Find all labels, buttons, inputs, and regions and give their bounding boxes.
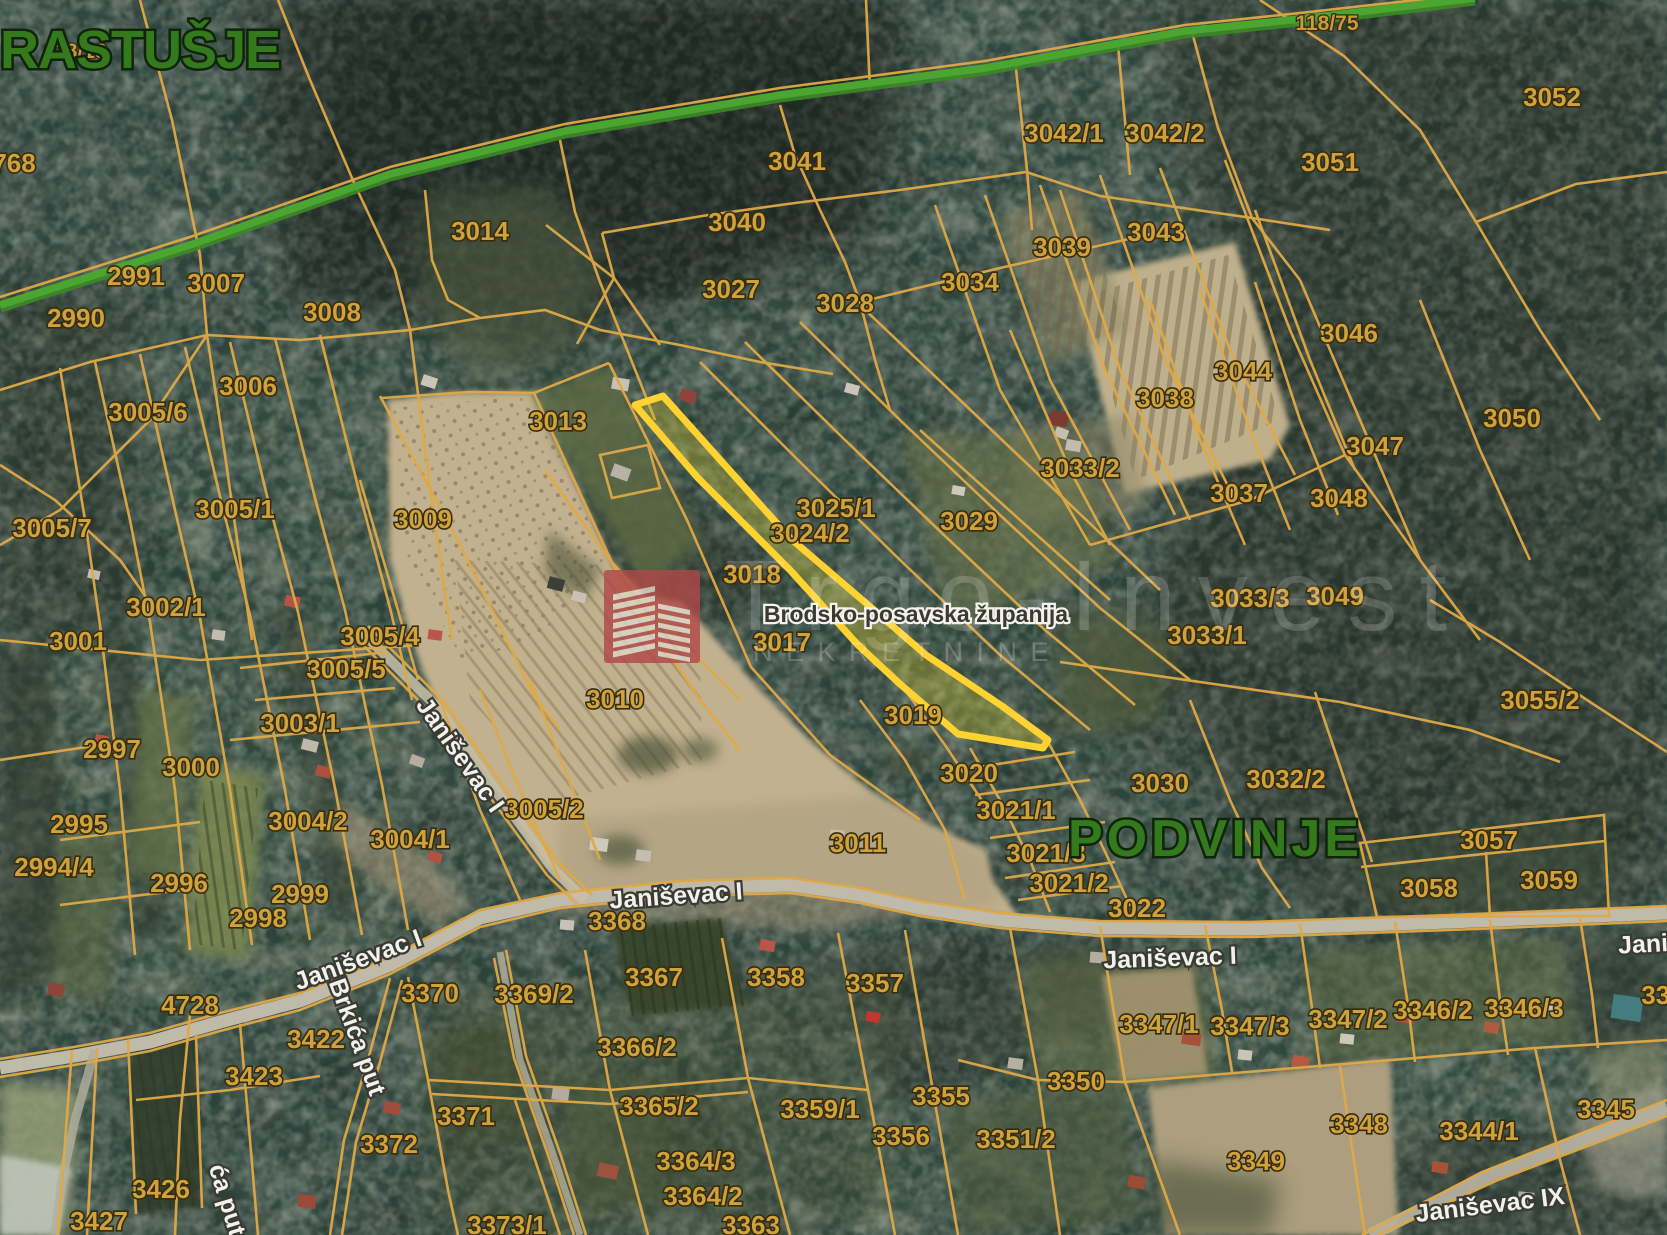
- svg-text:2991: 2991: [107, 261, 165, 291]
- svg-text:3365/2: 3365/2: [619, 1091, 699, 1121]
- svg-text:3346/3: 3346/3: [1484, 993, 1564, 1023]
- svg-text:3005/5: 3005/5: [306, 654, 386, 684]
- svg-text:2995: 2995: [50, 809, 108, 839]
- svg-text:3021/1: 3021/1: [976, 795, 1056, 825]
- svg-text:3345: 3345: [1577, 1094, 1635, 1124]
- svg-text:3004/1: 3004/1: [370, 824, 450, 854]
- svg-text:3347/2: 3347/2: [1308, 1004, 1388, 1034]
- svg-text:3369/2: 3369/2: [494, 979, 574, 1009]
- svg-text:2997: 2997: [83, 734, 141, 764]
- svg-text:3034: 3034: [941, 267, 999, 297]
- svg-text:3427: 3427: [70, 1206, 128, 1235]
- svg-text:3373/1: 3373/1: [467, 1210, 547, 1235]
- svg-text:3355: 3355: [912, 1081, 970, 1111]
- svg-text:3019: 3019: [884, 700, 942, 730]
- svg-text:3011: 3011: [830, 828, 886, 858]
- svg-text:3044: 3044: [1214, 356, 1272, 386]
- svg-text:3423: 3423: [225, 1061, 283, 1091]
- svg-text:3009: 3009: [394, 504, 452, 534]
- svg-text:3057: 3057: [1460, 825, 1518, 855]
- svg-text:3008: 3008: [303, 297, 361, 327]
- svg-text:3041: 3041: [768, 146, 826, 176]
- svg-text:3371: 3371: [437, 1101, 495, 1131]
- svg-text:3042/1: 3042/1: [1024, 118, 1104, 148]
- svg-text:3055/2: 3055/2: [1500, 685, 1580, 715]
- svg-text:3052: 3052: [1523, 82, 1581, 112]
- svg-text:3046: 3046: [1320, 318, 1378, 348]
- svg-text:Brodsko-posavska županija: Brodsko-posavska županija: [764, 601, 1068, 627]
- svg-text:Trgo-Invest: Trgo-Invest: [725, 540, 1469, 652]
- svg-text:3027: 3027: [702, 274, 760, 304]
- svg-text:3043: 3043: [1127, 217, 1185, 247]
- svg-text:3059: 3059: [1520, 865, 1578, 895]
- svg-text:3004/2: 3004/2: [268, 806, 348, 836]
- svg-text:2994/4: 2994/4: [14, 852, 94, 882]
- svg-text:3422: 3422: [287, 1024, 345, 1054]
- svg-text:3367: 3367: [625, 962, 683, 992]
- svg-text:3037: 3037: [1210, 478, 1268, 508]
- svg-text:3000: 3000: [162, 752, 220, 782]
- svg-text:3033/2: 3033/2: [1040, 453, 1120, 483]
- svg-text:3003/1: 3003/1: [260, 708, 340, 738]
- svg-text:2990: 2990: [47, 303, 105, 333]
- svg-text:118/75: 118/75: [1295, 12, 1358, 35]
- svg-text:3048: 3048: [1310, 483, 1368, 513]
- svg-text:3359/1: 3359/1: [780, 1094, 860, 1124]
- svg-text:3030: 3030: [1131, 768, 1189, 798]
- svg-text:3005/6: 3005/6: [108, 397, 188, 427]
- svg-text:3426: 3426: [132, 1174, 190, 1204]
- svg-text:3348: 3348: [1330, 1109, 1388, 1139]
- svg-text:3028: 3028: [816, 288, 874, 318]
- svg-text:3058: 3058: [1400, 873, 1458, 903]
- svg-text:3007: 3007: [187, 268, 245, 298]
- svg-text:3349: 3349: [1227, 1146, 1285, 1176]
- svg-text:NEKRETNINE: NEKRETNINE: [753, 637, 1062, 667]
- svg-text:3370: 3370: [401, 978, 459, 1008]
- svg-text:3346/2: 3346/2: [1393, 995, 1473, 1025]
- svg-text:PODVINJE: PODVINJE: [1068, 810, 1363, 868]
- svg-text:3042/2: 3042/2: [1125, 118, 1205, 148]
- svg-text:3001: 3001: [49, 626, 107, 656]
- svg-text:334: 334: [1641, 980, 1667, 1010]
- svg-text:3357: 3357: [846, 968, 904, 998]
- svg-text:3014: 3014: [451, 216, 509, 246]
- svg-text:3013: 3013: [529, 406, 587, 436]
- svg-text:3364/3: 3364/3: [656, 1146, 736, 1176]
- svg-text:3029: 3029: [940, 506, 998, 536]
- svg-text:3002/1: 3002/1: [126, 592, 206, 622]
- svg-text:3051: 3051: [1301, 147, 1359, 177]
- svg-text:3005/4: 3005/4: [340, 621, 420, 651]
- svg-text:2998: 2998: [229, 903, 287, 933]
- svg-text:3022: 3022: [1108, 893, 1166, 923]
- svg-text:3358: 3358: [747, 962, 805, 992]
- svg-text:3363: 3363: [722, 1210, 780, 1235]
- svg-text:3005/1: 3005/1: [195, 494, 275, 524]
- svg-text:3038: 3038: [1136, 383, 1194, 413]
- svg-text:3040: 3040: [708, 207, 766, 237]
- svg-text:3005/2: 3005/2: [504, 794, 584, 824]
- svg-text:3347/1: 3347/1: [1119, 1009, 1199, 1039]
- svg-text:3366/2: 3366/2: [597, 1032, 677, 1062]
- svg-text:3039: 3039: [1033, 232, 1091, 262]
- svg-text:Janiševac I: Janiševac I: [1103, 942, 1237, 975]
- svg-text:4728: 4728: [161, 990, 219, 1020]
- svg-text:3351/2: 3351/2: [976, 1124, 1056, 1154]
- svg-text:Janiš: Janiš: [1617, 928, 1667, 959]
- svg-text:3350: 3350: [1047, 1066, 1105, 1096]
- svg-text:3364/2: 3364/2: [663, 1181, 743, 1211]
- svg-text:3020: 3020: [940, 758, 998, 788]
- svg-text:3047: 3047: [1346, 431, 1404, 461]
- svg-text:768: 768: [0, 148, 36, 178]
- svg-text:3347/3: 3347/3: [1210, 1011, 1290, 1041]
- svg-text:3010: 3010: [586, 684, 644, 714]
- svg-text:RASTUŠJE: RASTUŠJE: [0, 19, 280, 80]
- svg-text:3372: 3372: [360, 1129, 418, 1159]
- svg-text:3050: 3050: [1483, 403, 1541, 433]
- svg-text:3356: 3356: [872, 1121, 930, 1151]
- svg-text:3344/1: 3344/1: [1439, 1116, 1519, 1146]
- svg-text:3032/2: 3032/2: [1246, 764, 1326, 794]
- svg-text:3005/7: 3005/7: [12, 513, 92, 543]
- svg-text:3006: 3006: [219, 371, 277, 401]
- svg-text:3021/2: 3021/2: [1029, 868, 1109, 898]
- svg-text:2996: 2996: [150, 868, 208, 898]
